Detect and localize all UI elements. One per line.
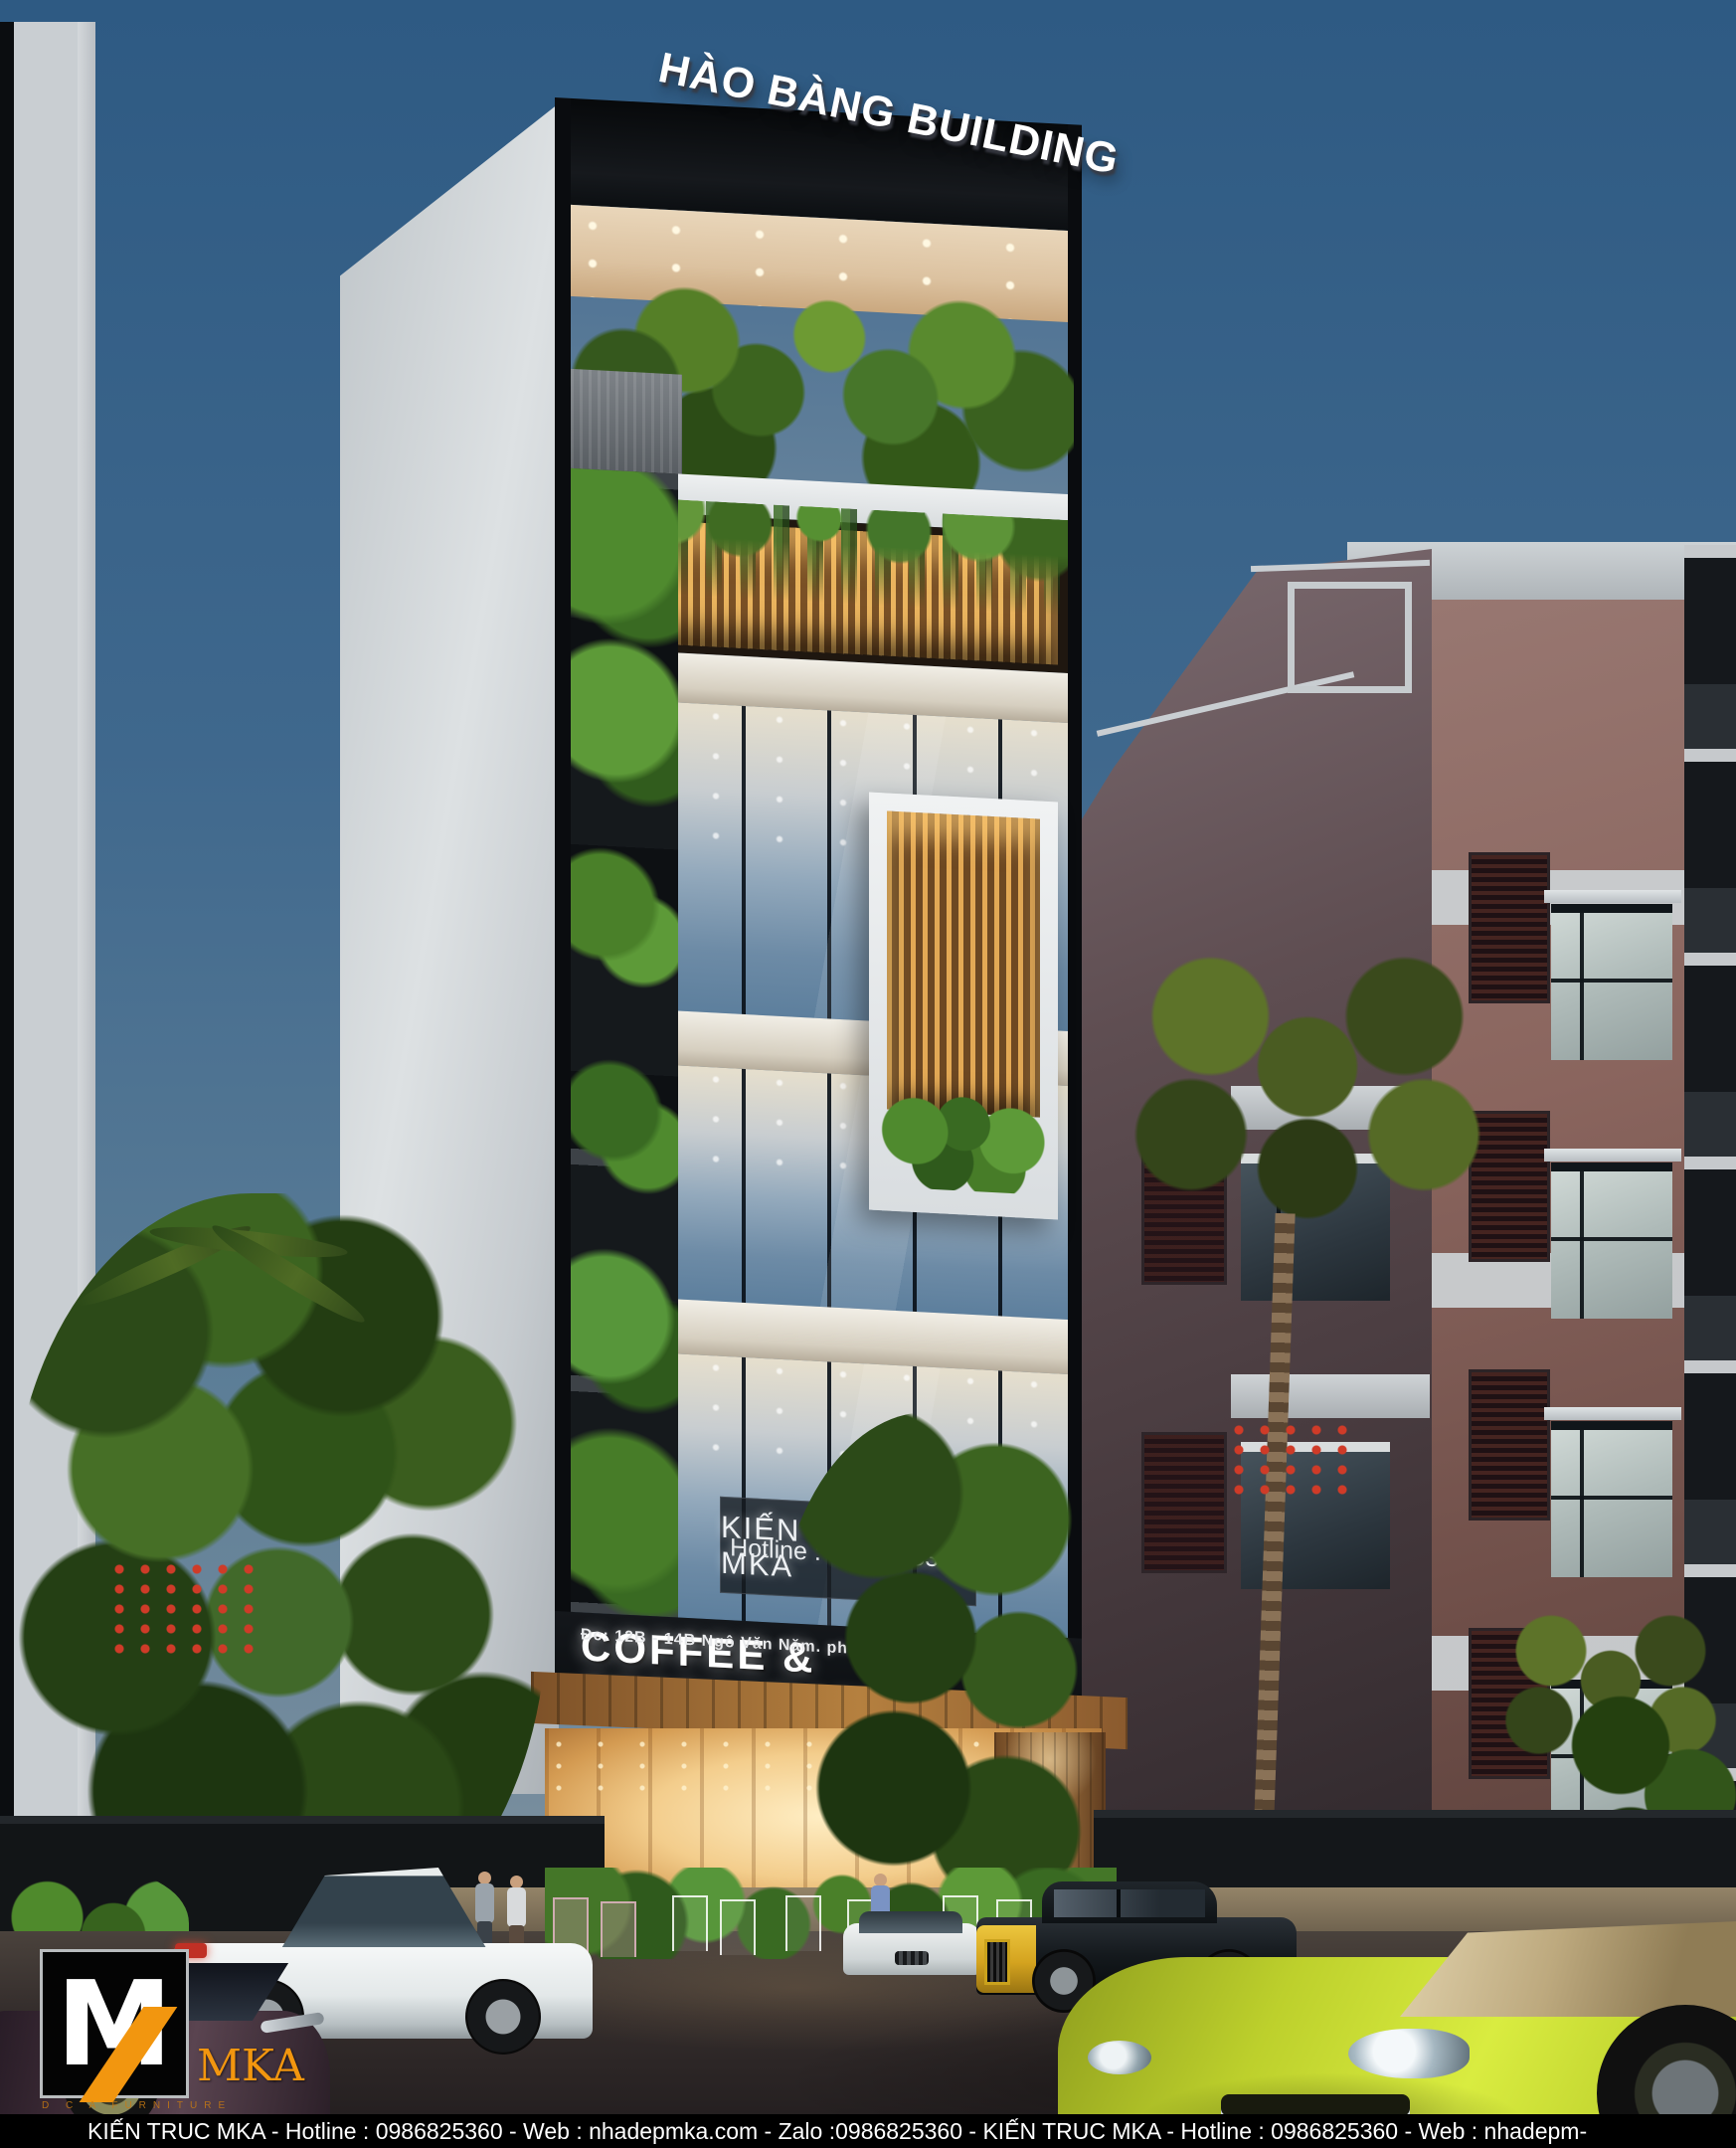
- louver-shutter: [1469, 1369, 1550, 1521]
- logo-wordmark: MKA: [197, 2041, 304, 2091]
- window-awning: [1544, 890, 1681, 903]
- cafe-chair: [672, 1895, 708, 1951]
- louver-shutter: [1141, 1432, 1227, 1573]
- car-wheel: [465, 1979, 541, 2055]
- red-flower-cluster: [1229, 1422, 1358, 1502]
- car-cabin-glass: [259, 1868, 495, 1947]
- window-awning: [1544, 1149, 1681, 1162]
- cafe-chair: [601, 1901, 636, 1957]
- car-headlight: [1088, 2041, 1151, 2074]
- balcony-plants: [571, 468, 678, 1618]
- facade-band: [1231, 1374, 1430, 1418]
- car-windshield: [1400, 1921, 1736, 2017]
- louver-shutter: [1469, 852, 1550, 1003]
- stone-planter: [571, 369, 682, 481]
- window-glass: [1551, 1171, 1672, 1319]
- window-glass: [1551, 913, 1672, 1060]
- dark-building-roof-frame: [1288, 582, 1412, 693]
- protruding-louver-box: [869, 793, 1058, 1220]
- cafe-chair: [785, 1895, 821, 1951]
- white-car-small: [843, 1911, 980, 1975]
- car-windows: [1054, 1889, 1205, 1917]
- window: [1551, 1163, 1672, 1310]
- mka-studio-logo: M MKA D C A FURNITURE: [40, 1949, 368, 2116]
- window: [1551, 1421, 1672, 1568]
- window-awning: [1544, 1407, 1681, 1420]
- cafe-chair: [720, 1899, 756, 1955]
- right-palm-crown: [1114, 915, 1501, 1253]
- logo-tagline: D C A FURNITURE: [42, 2100, 366, 2111]
- backlit-wood-slats: [887, 811, 1040, 1118]
- car-grille: [895, 1951, 929, 1965]
- box-planter-plants: [877, 1091, 1050, 1195]
- balcony-garden-strip: [571, 468, 678, 1618]
- watermark-text: KIẾN TRUC MKA - Hotline : 0986825360 - W…: [0, 2118, 1587, 2145]
- red-flower-cluster: [109, 1561, 259, 1656]
- window-glass: [1551, 1430, 1672, 1577]
- window: [1551, 904, 1672, 1051]
- architectural-rendering: KIẾN TRUC MKA Hotline : 0986825360 COFFE…: [0, 0, 1736, 2148]
- car-headlight: [1348, 2029, 1470, 2078]
- car-windshield: [859, 1911, 962, 1933]
- car-grille: [984, 1939, 1010, 1985]
- watermark-bar: KIẾN TRUC MKA - Hotline : 0986825360 - W…: [0, 2114, 1736, 2148]
